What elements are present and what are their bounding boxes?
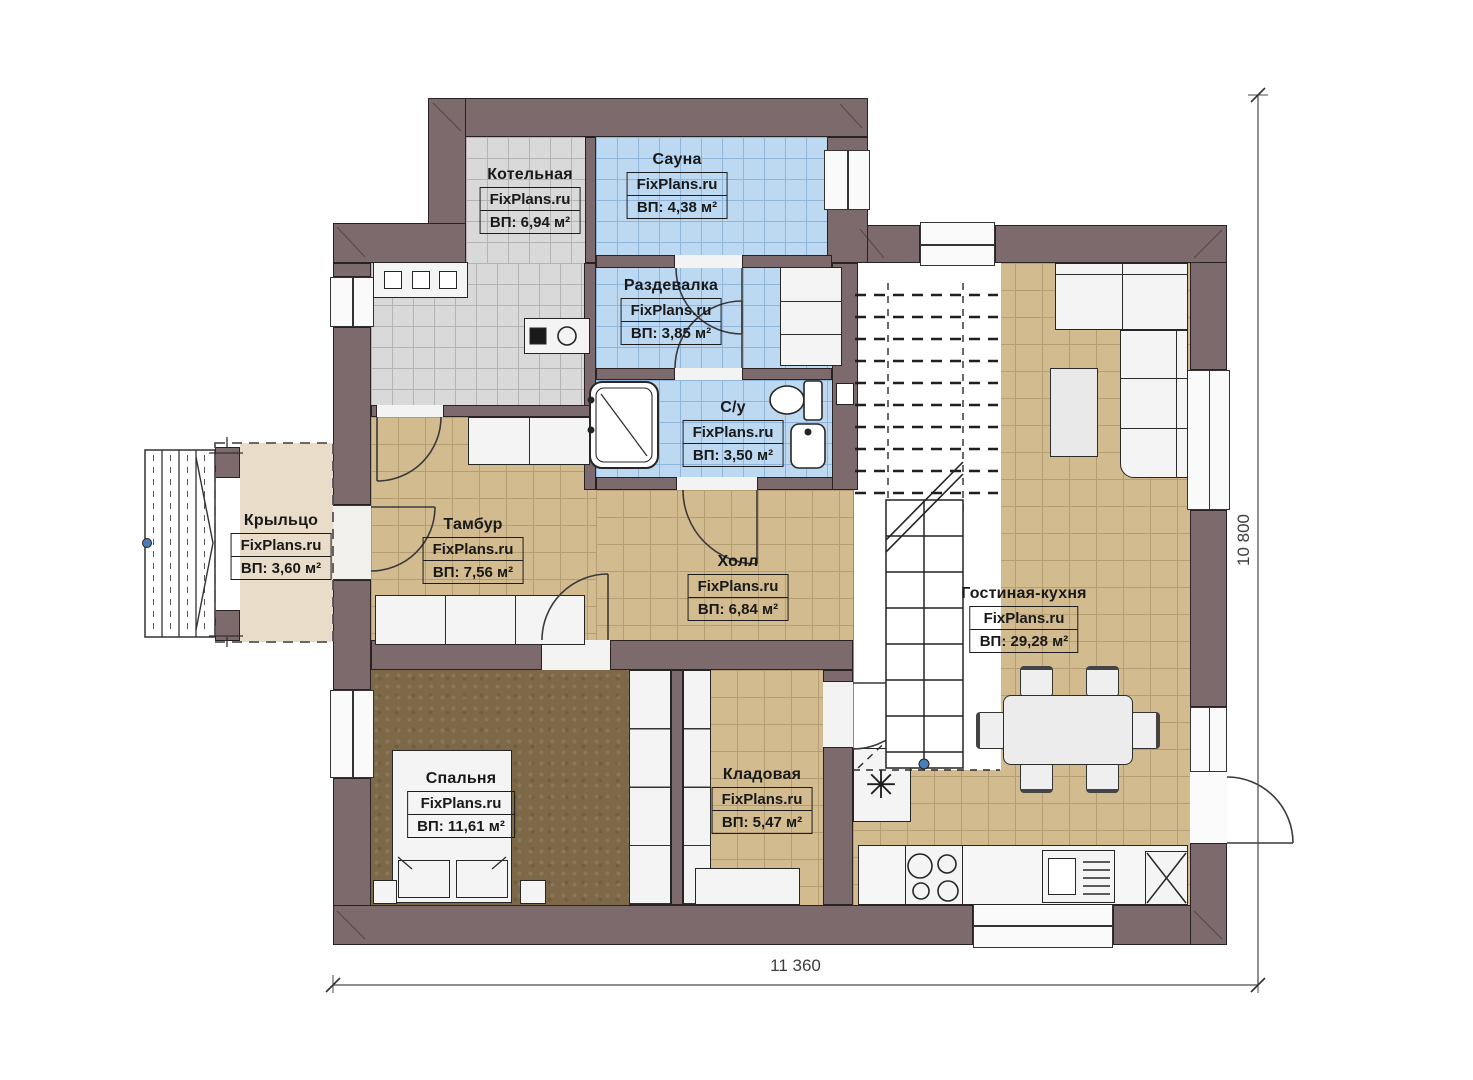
wall-left-seg2 [333,327,371,505]
room-area: ВП: 29,28 м² [971,629,1078,652]
wall-top-right-seg2 [995,225,1227,263]
porch-node-dot [143,539,152,548]
coffee-table [1050,368,1098,457]
window-right-living [1187,370,1230,510]
room-area: ВП: 3,85 м² [622,321,721,344]
boiler-counter [373,262,468,298]
sofa-backrest-line [1176,331,1177,477]
washing-machine [524,318,590,354]
label-kotelnaya: Котельная FixPlans.ruВП: 6,94 м² [480,166,581,234]
label-spalnya: Спальня FixPlans.ruВП: 11,61 м² [407,770,515,838]
wall-dressing-bottom-2 [742,368,832,380]
dimension-height-label: 10 800 [1234,500,1254,580]
pillow [456,860,508,898]
dimension-width-label: 11 360 [333,956,1258,976]
watermark: FixPlans.ru [232,534,331,556]
wall-step-top-left [333,223,466,263]
door-opening-bathroom [677,477,757,490]
window-bottom-kitchen [973,902,1113,948]
label-kryltso: Крыльцо FixPlans.ruВП: 3,60 м² [231,512,332,580]
dining-chair [1086,666,1119,697]
sofa-top-section [1055,263,1188,330]
label-su: С/у FixPlans.ruВП: 3,50 м² [683,399,784,467]
window-sauna-right [824,150,870,210]
room-name: Раздевалка [621,277,722,295]
room-area: ВП: 7,56 м² [424,560,523,583]
room-area: ВП: 5,47 м² [713,810,812,833]
door-opening-dressing [675,368,742,380]
watermark: FixPlans.ru [971,607,1078,629]
vestibule-cabinet-top [468,417,590,465]
window-left-bedroom [330,690,374,778]
wall-storage-right [823,747,853,905]
cabinet-divider [515,596,516,644]
counter-unit-icon [439,271,457,289]
sofa-backrest-line [1056,274,1187,275]
door-opening-porch [333,505,371,580]
boiler-unit-box [853,748,911,822]
sofa-seat-divider [1121,378,1187,379]
stair-direction-arrow [196,457,213,630]
door-opening-right [1190,772,1227,843]
watermark: FixPlans.ru [713,788,812,810]
wall-boiler-sauna [585,137,596,263]
room-area: ВП: 6,94 м² [481,210,580,233]
room-name: Тамбур [423,516,524,534]
watermark: FixPlans.ru [628,173,727,195]
room-name: Спальня [407,770,515,788]
counter-unit-icon [384,271,402,289]
storage-shelf-bottom [695,868,800,905]
wall-right-seg2 [1190,510,1227,707]
wall-storage-right-top [823,670,853,682]
vestibule-cabinet-bottom [375,595,585,645]
stove [905,845,963,905]
wall-bedroom-storage [671,670,683,905]
wall-boiler-bottom [443,405,596,417]
pillow [398,860,450,898]
room-name: Крыльцо [231,512,332,530]
vent-shaft [836,383,854,405]
wall-left-seg1 [333,263,371,277]
room-name: Холл [688,553,789,571]
cabinet-divider [529,418,530,464]
sink-basin [1048,858,1076,895]
floor-plan-canvas: ✳ Котельная FixPlans.ruВП: 6,94 м² Сауна… [0,0,1473,1080]
wall-bedroom-top-2 [610,640,853,670]
label-razdevalka: Раздевалка FixPlans.ruВП: 3,85 м² [621,277,722,345]
room-name: Котельная [480,166,581,184]
dining-chair [1130,712,1160,749]
room-area: ВП: 3,50 м² [684,443,783,466]
room-area: ВП: 6,84 м² [689,597,788,620]
door-arc-exterior-right [1227,777,1293,843]
bench-divider [781,301,841,302]
wall-left-sauna-block [428,98,466,225]
sofa-seat-divider [1121,428,1187,429]
watermark: FixPlans.ru [689,575,788,597]
watermark: FixPlans.ru [424,538,523,560]
watermark: FixPlans.ru [481,188,580,210]
room-area: ВП: 4,38 м² [628,195,727,218]
wall-top-sauna-block [428,98,868,137]
porch-column-bottom [215,610,240,641]
window-left-boiler [330,277,374,327]
porch-column-top [215,447,240,478]
room-name: С/у [683,399,784,417]
dining-chair [1020,762,1053,793]
label-holl: Холл FixPlans.ruВП: 6,84 м² [688,553,789,621]
door-opening-storage [823,682,853,747]
staircase-area [853,263,1001,770]
nightstand-right [520,880,546,904]
label-sauna: Сауна FixPlans.ruВП: 4,38 м² [627,151,728,219]
nightstand-left [373,880,397,904]
refrigerator [1145,851,1188,905]
dining-chair [976,712,1006,749]
sidelight-entry-right [1190,707,1227,772]
window-top [920,222,995,266]
room-area: ВП: 3,60 м² [232,556,331,579]
label-gostinaya: Гостиная-кухня FixPlans.ruВП: 29,28 м² [961,585,1086,653]
counter-unit-icon [412,271,430,289]
room-area: ВП: 11,61 м² [408,814,514,837]
bench-divider [781,334,841,335]
dressing-bench [780,267,842,366]
dining-chair [1086,762,1119,793]
wall-left-seg3 [333,580,371,690]
room-name: Сауна [627,151,728,169]
wall-bottom-left [333,905,973,945]
watermark: FixPlans.ru [622,299,721,321]
room-name: Гостиная-кухня [961,585,1086,603]
wall-right-seg3 [1190,843,1227,945]
door-opening-boiler [377,405,443,417]
wall-sauna-bottom-1 [596,255,675,268]
label-tambur: Тамбур FixPlans.ruВП: 7,56 м² [423,516,524,584]
watermark: FixPlans.ru [684,421,783,443]
door-opening-sauna [675,255,742,268]
bedroom-wardrobe [629,670,671,905]
watermark: FixPlans.ru [408,792,514,814]
label-kladovaya: Кладовая FixPlans.ruВП: 5,47 м² [712,766,813,834]
wall-dressing-bottom-1 [596,368,675,380]
room-name: Кладовая [712,766,813,784]
sofa-right-section [1120,330,1188,478]
cabinet-divider [445,596,446,644]
dining-table [1003,695,1133,765]
dining-chair [1020,666,1053,697]
wall-bath-bottom-1 [596,477,677,490]
